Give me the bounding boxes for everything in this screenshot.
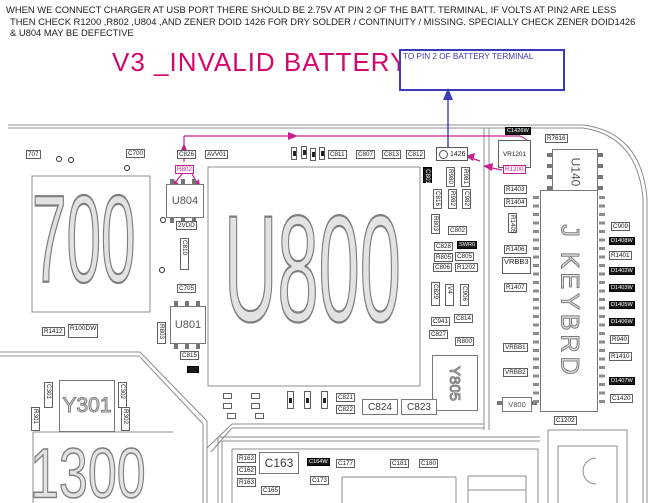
pin-c — [310, 148, 316, 161]
tinyv-3 — [321, 391, 328, 409]
via-1 — [56, 156, 62, 162]
pin-a — [291, 147, 297, 160]
c941-label: C941 — [431, 317, 450, 326]
c162-label: C162 — [237, 466, 256, 475]
r163-label: R163 — [237, 478, 256, 487]
r1200-label: R1200 — [503, 165, 526, 174]
pcb-repair-diagram: WHEN WE CONNECT CHARGER AT USB PORT THER… — [0, 0, 652, 503]
c177-label: C177 — [336, 459, 355, 468]
vr1201: VR1201 — [498, 140, 531, 168]
vrbb1-label: VRBB1 — [503, 343, 528, 352]
c828-label: C828 — [434, 242, 453, 251]
tiny-5 — [251, 403, 260, 409]
r1412-label: R1412 — [42, 327, 65, 336]
y805: Y805 — [432, 355, 478, 411]
c802-label: C802 — [448, 226, 467, 235]
arrow-right-on-trace — [288, 132, 298, 140]
c813-label: C813 — [382, 150, 401, 159]
c705-label: C705 — [177, 284, 196, 293]
pin-d — [319, 147, 325, 160]
r940-label: R940 — [610, 335, 629, 344]
vrbb3-label: VRBB3 — [502, 257, 531, 274]
c814-label: C814 — [454, 314, 473, 323]
r162-label: R162 — [237, 454, 256, 463]
r301-label: R301 — [31, 407, 40, 431]
c1426w-label: C1426W — [505, 127, 531, 135]
via-2 — [68, 157, 74, 163]
r7616-label: R7616 — [545, 134, 568, 143]
u140: U140 — [552, 149, 598, 195]
d1408w-label: D1408W — [609, 237, 635, 245]
c180-label: C180 — [419, 459, 438, 468]
r1410-label: R1410 — [609, 352, 632, 361]
d18-mark — [187, 366, 199, 373]
d1403w-label: D1403W — [609, 284, 635, 292]
u800-silk: U800 — [224, 196, 401, 267]
r1407-label: R1407 — [504, 283, 527, 292]
r800-label: R800 — [455, 337, 474, 346]
via-3 — [124, 165, 130, 171]
d1402w-label: D1402W — [609, 267, 635, 275]
v800: V800 — [502, 397, 532, 412]
u801: U801 — [170, 306, 206, 344]
c827-label: C827 — [429, 330, 448, 339]
c181-label: C181 — [390, 459, 409, 468]
r803-mid-label: R803 — [431, 214, 440, 234]
r980-label: R980 — [446, 167, 455, 187]
d1406w-label: D1406W — [609, 318, 635, 326]
tinyv-2 — [304, 391, 311, 409]
r100dw-label: R100DW — [68, 324, 98, 338]
j-keybrd: J KEYBRD — [540, 190, 598, 412]
kbd-teeth-right — [599, 196, 605, 406]
r1406-label: R1406 — [504, 245, 527, 254]
c1420-label: C1420 — [610, 394, 633, 403]
via-4 — [160, 217, 166, 223]
r1401-label: R1401 — [609, 251, 632, 260]
blue-arrow-to-callout — [443, 88, 453, 150]
c1202-label: C1202 — [554, 416, 577, 425]
tiny-3 — [227, 413, 236, 419]
kbd-teeth-left — [533, 196, 539, 406]
c822-label: C822 — [336, 405, 355, 414]
r805-label: R805 — [434, 253, 453, 262]
c821-label: C821 — [336, 393, 355, 402]
c173-label: C173 — [310, 476, 329, 485]
c707-label: 707 — [26, 150, 41, 159]
tiny-2 — [223, 403, 232, 409]
c982-label: C982 — [462, 189, 471, 209]
c829-label: C829 — [431, 282, 440, 306]
r1405-label: R1405 — [508, 213, 517, 233]
d1426-zener: 1426 — [436, 147, 468, 161]
u804: U804 — [166, 184, 204, 218]
r1404-label: R1404 — [504, 198, 527, 207]
u1300-silk: 1300 — [30, 442, 146, 492]
c165-label: C165 — [261, 486, 280, 495]
r302-label: R302 — [121, 407, 130, 431]
c824: C824 — [362, 399, 398, 415]
c815-label: C815 — [180, 351, 199, 360]
c909-label: C909 — [611, 222, 630, 231]
c164w-label: C164W — [307, 458, 330, 466]
r803-left-label: R803 — [157, 322, 166, 344]
r1403-label: R1403 — [504, 185, 527, 194]
tiny-4 — [251, 393, 260, 399]
c810-label: C810 — [180, 238, 189, 270]
c823: C823 — [401, 399, 437, 415]
c806-label: C806 — [433, 263, 452, 272]
r802-label: R802 — [175, 165, 194, 174]
magenta-trace — [172, 132, 530, 187]
y301: Y301 — [59, 380, 115, 432]
c906-label: C906 — [460, 284, 469, 306]
swr0-label: SWR0 — [457, 241, 477, 249]
c700-label: C700 — [126, 149, 145, 158]
tiny-1 — [223, 393, 232, 399]
tinyv-1 — [287, 391, 294, 409]
c163: C163 — [259, 452, 299, 474]
c801-label: C801 — [423, 167, 432, 183]
c811-label: C811 — [328, 150, 347, 159]
r981-label: R981 — [461, 167, 470, 187]
c301-label: C301 — [44, 382, 53, 408]
c816-label: C816 — [433, 189, 442, 209]
c302-label: C302 — [118, 382, 127, 408]
v4-label: V4 — [445, 284, 454, 306]
c807-label: C807 — [356, 150, 375, 159]
via-5 — [159, 267, 165, 273]
r982-label: R982 — [448, 189, 457, 209]
c805-label: C805 — [455, 252, 474, 261]
avv01-label: AVV01 — [205, 150, 228, 159]
c812-label: C812 — [406, 150, 425, 159]
tiny-6 — [255, 413, 264, 419]
pin-b — [301, 146, 307, 159]
vdd2-label: 2VDD — [176, 221, 197, 230]
c826-label: C826 — [177, 150, 196, 159]
d1407w-label: D1407W — [609, 377, 635, 385]
r1202-label: R1202 — [455, 263, 478, 272]
d1405w-label: D1405W — [609, 301, 635, 309]
u700-silk: 700 — [32, 182, 135, 242]
vrbb2-label: VRBB2 — [503, 368, 528, 377]
